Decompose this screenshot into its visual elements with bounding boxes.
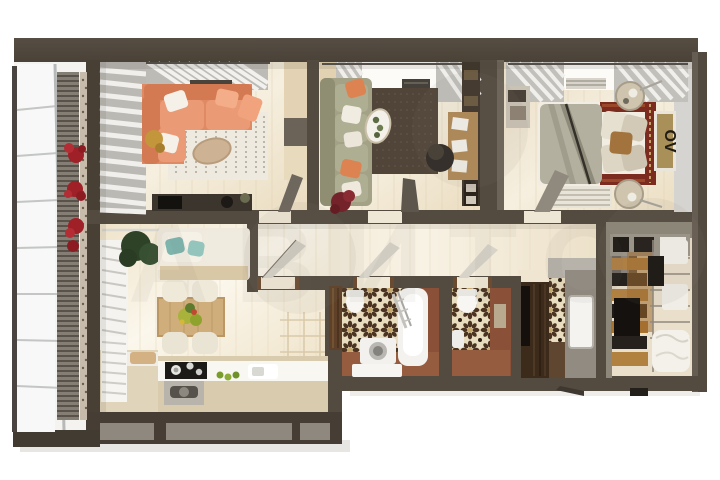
svg-text:АВИТО: АВИТО [128,201,628,326]
svg-text:OV: OV [661,129,678,152]
